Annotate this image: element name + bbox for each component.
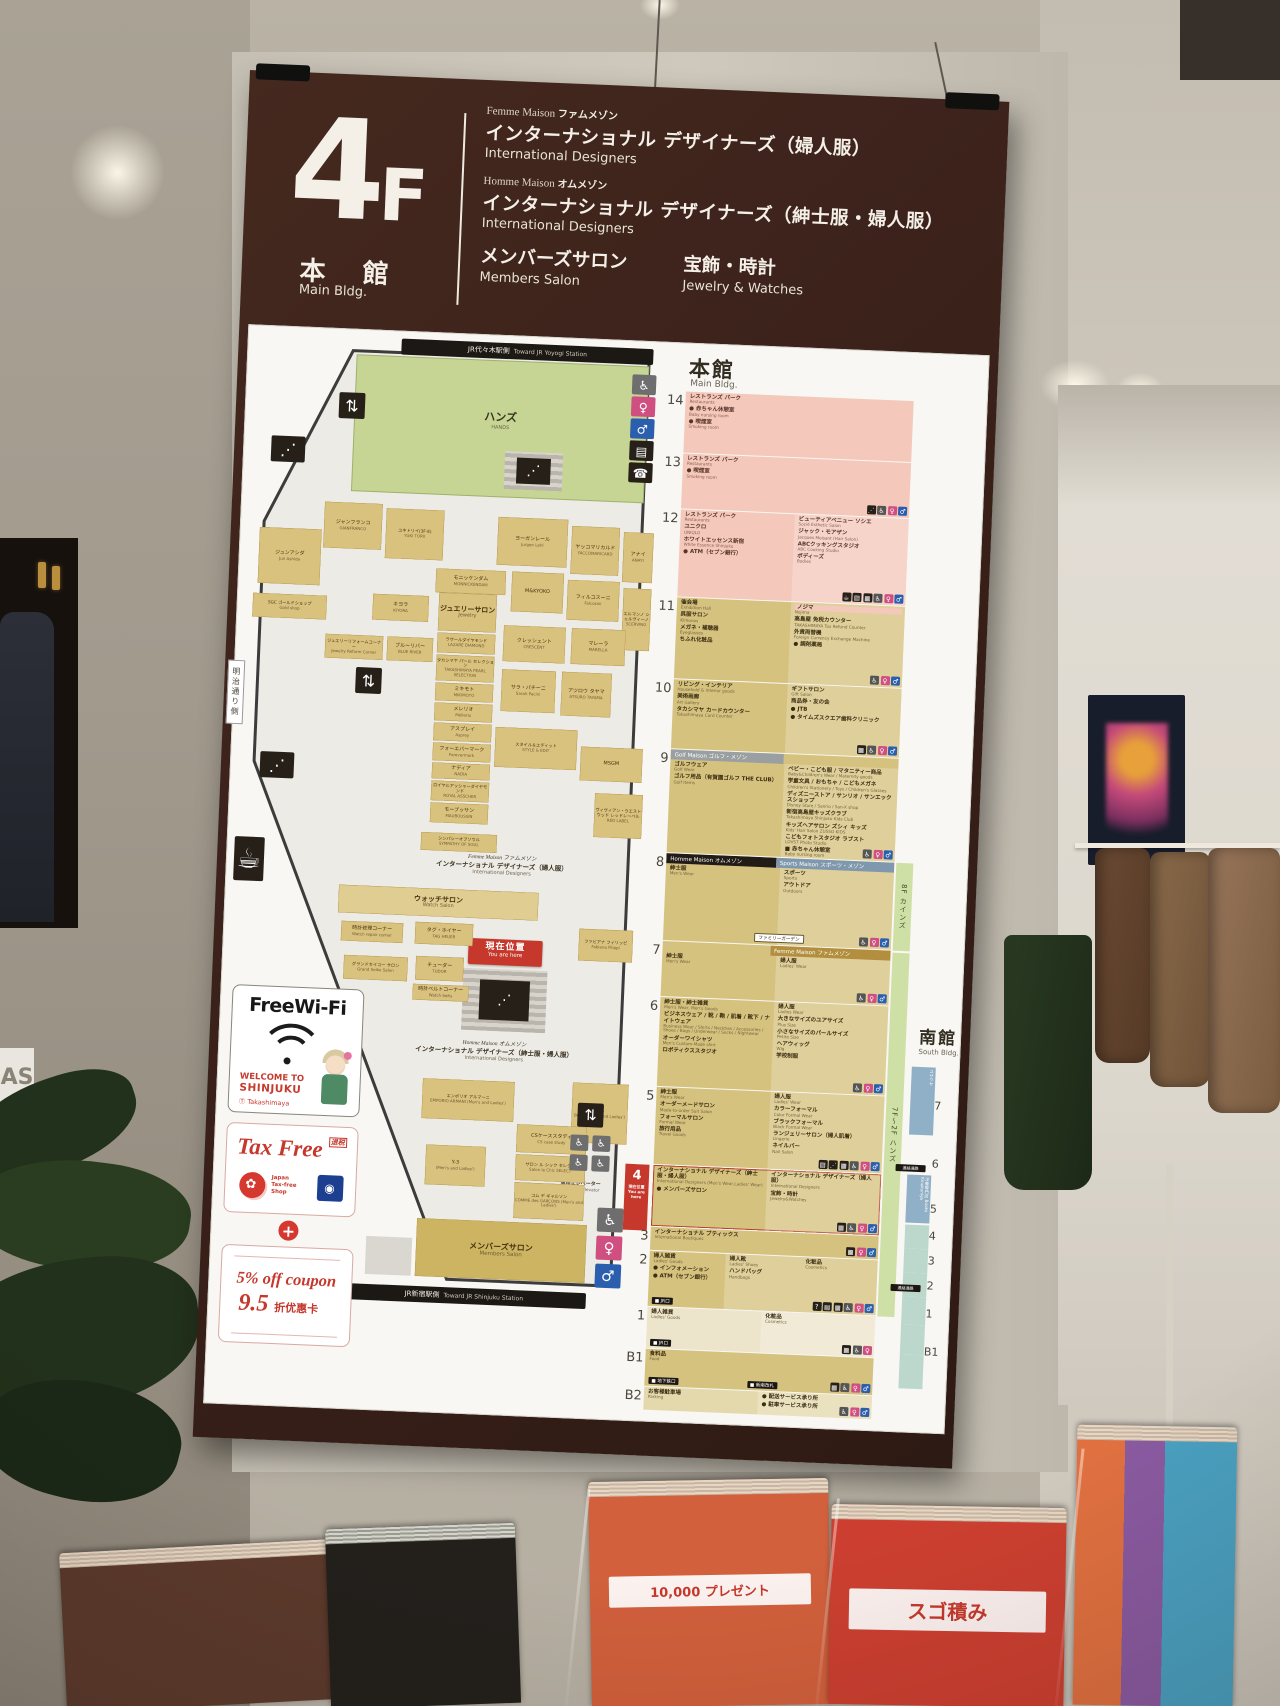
map-shop: Y-3(Men's and Ladies') [424, 1144, 486, 1186]
elevator-icon: ⇅ [577, 1103, 604, 1128]
coupon-text-cn: 折优惠卡 [274, 1299, 319, 1317]
vending-icon: ▤ [629, 440, 654, 461]
map-shop-name-en: STYLE & EDIT [522, 748, 549, 754]
directory-item: 婦人服Ladies' Wear [780, 958, 887, 973]
pair-jp: 宝飾・時計 [683, 250, 805, 281]
coupon-number: 9.5 [238, 1290, 269, 1318]
coat [1208, 848, 1280, 1113]
shop-icon: ▦ [842, 1345, 851, 1354]
map-shop-name-en: MONNICKENDAM [454, 582, 488, 588]
floor-number-3: 3 [622, 1226, 649, 1244]
directory-item: 婦人雑貨Ladies' Goods [651, 1309, 758, 1324]
row-icons: ♿♀♂ [839, 1407, 869, 1417]
brochure-stack [1073, 1425, 1238, 1706]
members-salon-area: メンバーズサロン Members Salon [415, 1218, 587, 1283]
ceiling-recess [1180, 0, 1280, 80]
wheelchair-icon: ♿ [840, 1383, 849, 1392]
women-restroom-icon: ♀ [857, 1223, 866, 1232]
women-restroom-icon: ♀ [595, 1236, 622, 1261]
wheelchair-icon: ♿ [839, 1407, 848, 1416]
wheelchair-icon: ♿ [592, 1135, 611, 1152]
row-icons: ▦♿♀ [842, 1345, 872, 1355]
digital-signage-screen [1088, 695, 1185, 865]
women-restroom-icon: ♀ [851, 1383, 860, 1392]
women-restroom-icon: ♀ [863, 1346, 872, 1355]
directory-item: 化粧品Cosmetics [765, 1314, 872, 1329]
men-restroom-icon: ♂ [864, 1304, 873, 1313]
directory-row-6: 6紳士服・紳士雑貨Men's Wear, Men's Goodsビジネスウェア … [629, 996, 917, 1098]
floor-row-content: 婦人雑貨Ladies' Goods● インフォメーション● ATM（セブン銀行）… [648, 1251, 878, 1315]
geisha-illustration [317, 1047, 353, 1106]
map-shop: シンパシーオブソウルSYMPATHY OF SOUL [420, 832, 497, 853]
row-columns: ゴルフウェアGolf Wearゴルフ用品（有賀園ゴルフ THE CLUB）Gol… [667, 759, 899, 861]
map-shop-name-en: Salon le Chic SELECT [529, 1168, 571, 1174]
row-icons: ▦♿♀♂ [836, 1223, 877, 1234]
women-restroom-icon: ♀ [884, 594, 893, 603]
row-columns: レストランズ パークRestaurants● 赤ちゃん休憩室Baby nursi… [683, 392, 913, 462]
men-restroom-icon: ♂ [891, 676, 900, 685]
map-shop-name-en: Grand Seiko Salon [357, 967, 394, 973]
women-restroom-icon: ♀ [869, 938, 878, 947]
wheelchair-icon: ♿ [849, 1161, 858, 1170]
south-floor-number-2: 2 [926, 1279, 949, 1293]
row-column: レストランズ パークRestaurants● 赤ちゃん休憩室Baby nursi… [683, 392, 913, 462]
row-column: 紳士服Men's WearオーダーメードサロンMade-to-order Sui… [654, 1087, 771, 1169]
connecting-passage-badge: 連絡通路 [890, 1284, 920, 1292]
row-column: リビング・インテリアHousehold & Interior goods美術画廊… [671, 679, 788, 753]
directory-item: 紳士服Men's Wear [670, 865, 777, 880]
map-shop-name-en: EMPORIO ARMANI (Men's and Ladies') [430, 1099, 506, 1107]
row-column: 婦人服Ladies Wear大きなサイズのユアサイズPlus Size小さなサイ… [771, 1002, 889, 1096]
shop-icon: ▦ [856, 745, 865, 754]
map-shop-name-en: MAUBOUSSIN [445, 813, 472, 819]
welcome-text: SHINJUKU [239, 1081, 301, 1096]
row-badge: ■ 新南改札 [747, 1381, 777, 1389]
men-restroom-icon: ♂ [870, 1162, 879, 1171]
wheelchair-icon: ♿ [867, 745, 876, 754]
floor-row-content: レストランズ パークRestaurants● 赤ちゃん休憩室Baby nursi… [683, 392, 913, 462]
map-shop-name-en: Jurgen Lehl [521, 542, 544, 548]
shop-icon: ▦ [839, 1161, 848, 1170]
shopper-silhouette [0, 612, 54, 922]
women-restroom-icon: ♀ [887, 506, 896, 515]
row-columns: 紳士服・紳士雑貨Men's Wear, Men's Goodsビジネスウェア /… [657, 997, 889, 1095]
you-are-here-marker: 現在位置 You are here [468, 938, 543, 967]
row-icons: ▦♿♀♂ [830, 1382, 871, 1393]
vending-icon: ▤ [818, 1160, 827, 1169]
wheelchair-icon: ♿ [870, 676, 879, 685]
floor-number-9: 9 [642, 748, 669, 766]
wheelchair-icon: ♿ [873, 594, 882, 603]
south-building-title: 南館 South Bldg. [918, 1023, 960, 1058]
floor-row-content: レストランズ パークRestaurantsユニクロUNIQLOホワイトエッセンス… [677, 509, 908, 605]
map-shop: メレリオMellerio [434, 702, 493, 722]
rack-divider [565, 1488, 591, 1706]
floor-row-content: リビング・インテリアHousehold & Interior goods美術画廊… [671, 679, 902, 757]
directory-row-11: 11催会場Exhibition Hall呉服サロンKimonosメガネ・補聴器E… [646, 596, 933, 690]
tax-free-title: Tax Free 退税 [226, 1133, 357, 1164]
japan-tax-free-logo [239, 1172, 266, 1199]
map-shop-name-en: GIANFRANCO [339, 526, 366, 532]
elevator-icon: ⇅ [355, 667, 382, 694]
women-restroom-icon: ♀ [854, 1303, 863, 1312]
south-floor-number-1: 1 [925, 1307, 948, 1321]
row-badge: ■ JR口 [650, 1339, 671, 1347]
escalator-icon: ⋰ [461, 968, 548, 1033]
map-shop-name-en: KIYORA [393, 608, 408, 613]
floor-number-1: 1 [619, 1306, 646, 1324]
map-shop: 時計修理コーナーWatch repair corner [341, 921, 404, 944]
map-shop-name-en: Fabiana Filippi [591, 945, 619, 951]
map-shop-name-jp: M&KYOKO [525, 589, 550, 596]
header-divider [456, 113, 466, 305]
row-column: 紳士服Men's Wear [661, 951, 777, 1001]
map-shop-name-en: Forevermark [449, 753, 475, 759]
stairs-icon: ⋰ [271, 435, 306, 462]
map-shop-name-en: SYMPATHY OF SOUL [439, 842, 479, 848]
directory-item: 化粧品Cosmetics [805, 1259, 874, 1273]
wheelchair-icon: ♿ [859, 937, 868, 946]
plus-icon: + [278, 1220, 299, 1241]
map-shop-name-en: Jewelry Reform Corner [331, 648, 376, 654]
map-shop-name-en: ANAYI [632, 558, 644, 563]
coupon-card: 5% off coupon 9.5折优惠卡 [218, 1244, 354, 1347]
shop-icon: ▦ [833, 1303, 842, 1312]
floor-row-content: 紳士服・紳士雑貨Men's Wear, Men's Goodsビジネスウェア /… [657, 997, 889, 1095]
japan-tax-free-text: JapanTax-freeShop [271, 1175, 297, 1197]
floor-number-6: 6 [632, 996, 659, 1014]
map-shop-name-en: COMME des GARÇONS (Men's and Ladies') [514, 1198, 584, 1210]
tax-free-card: Tax Free 退税 JapanTax-freeShop [223, 1122, 359, 1217]
men-restroom-icon: ♂ [894, 594, 903, 603]
women-restroom-icon: ♀ [860, 1162, 869, 1171]
wheelchair-icon: ♿ [632, 374, 657, 395]
map-shop: ジュンアシダJun Ashida [258, 527, 322, 586]
map-shop: 時計ベルトコーナーWatch belts [412, 984, 469, 1002]
women-restroom-icon: ♀ [856, 1247, 865, 1256]
map-shop: フィルコスーニFalcosini [566, 580, 620, 622]
brochure-text: 10,000 プレゼント [609, 1573, 811, 1608]
map-shop-name-jp: MSGM [603, 762, 619, 768]
men-restroom-icon: ♂ [884, 850, 893, 859]
south-floor-number-6: 6 [932, 1158, 955, 1172]
row-column: 催会場Exhibition Hall呉服サロンKimonosメガネ・補聴器Eye… [674, 597, 791, 683]
map-shop-name-en: Jewelry [458, 613, 476, 620]
floor-number-5: 5 [628, 1086, 655, 1104]
map-shop-name-en: TUDOR [432, 969, 447, 974]
south-tenant-box [901, 1296, 926, 1325]
pair-en: Jewelry & Watches [682, 278, 803, 298]
row-column: インターナショナル デザイナーズ（紳士服・婦人服）International D… [651, 1165, 767, 1231]
map-shop-name-en: YUKI TORII [404, 534, 425, 539]
escalator-icon: ⋰ [828, 1160, 837, 1169]
brochure-stack [59, 1539, 342, 1706]
map-shop: アスプレイAsprey [433, 722, 492, 742]
directory-item: 紳士服Men's Wear [666, 953, 773, 968]
row-icons: ▦♀♂ [846, 1247, 876, 1257]
map-shop: ロイヤルアッシャーダイヤモンドROYAL ASSCHER [431, 780, 490, 802]
wheelchair-icon: ♿ [853, 1083, 862, 1092]
women-restroom-icon: ♀ [877, 746, 886, 755]
wheelchair-icon: ♿ [844, 1303, 853, 1312]
floor-number-10: 10 [645, 678, 672, 696]
map-shop-name-en: NADIA [454, 772, 467, 777]
men-restroom-icon: ♂ [860, 1408, 869, 1417]
floor-row-content: Homme Maison オムメゾンSports Maison スポーツ・メゾン… [663, 853, 894, 949]
bottle [52, 566, 60, 590]
women-restroom-icon: ♀ [863, 1084, 872, 1093]
map-shop: ヴィヴィアン・ウエストウッド レッドレーベルRED LABEL [593, 793, 643, 839]
information-icon: ? [812, 1302, 821, 1311]
header-entry-1: Homme Maison オムメゾンインターナショナル デザイナーズ（紳士服・婦… [481, 172, 995, 252]
cafe-icon: ☕ [842, 592, 851, 601]
men-restroom-icon: ♂ [594, 1264, 621, 1289]
floor-number-7: 7 [634, 940, 661, 958]
map-shop: ブルーリバーBLUE RIVER [386, 636, 433, 662]
map-shop-name-en: MARELLA [589, 647, 608, 652]
brochure-text: スゴ積み [848, 1588, 1046, 1632]
map-shop: グランドセイコー サロンGrand Seiko Salon [343, 955, 408, 982]
building-name-en: Main Bldg. [299, 282, 368, 300]
shop-icon: ▦ [836, 1223, 845, 1232]
header-pair: メンバーズサロンMembers Salon宝飾・時計Jewelry & Watc… [479, 242, 992, 306]
header-pair-item-1: 宝飾・時計Jewelry & Watches [682, 250, 804, 298]
row-column: ノジマNojima高島屋 免税カウンターTAKASHIMAYA Tax Refu… [788, 602, 905, 688]
map-shop: チューダーTUDOR [415, 956, 464, 982]
shop-icon: ▦ [863, 593, 872, 602]
row-column: 紳士服・紳士雑貨Men's Wear, Men's Goodsビジネスウェア /… [657, 997, 775, 1091]
floor-number-11: 11 [649, 596, 676, 614]
meiji-street-label: 明治通り側 [226, 660, 246, 725]
corridor-block [365, 1236, 413, 1276]
row-column: ベビー・こども服 / マタニティー商品Baby&Children's Wear … [781, 764, 899, 862]
floor-number-4: 4現在位置You are here [623, 1164, 650, 1231]
map-shop: フォーエバーマークForevermark [432, 742, 491, 762]
map-shop: コム デ ギャルソンCOMME des GARÇONS (Men's and L… [513, 1182, 584, 1221]
map-shop-name-en: (Men's and Ladies') [436, 1165, 475, 1171]
floor-guide-sign: 4F 本 館 Main Bldg. Femme Maison ファムメゾンインタ… [193, 70, 1010, 1469]
men-restroom-icon: ♂ [898, 507, 907, 516]
escalator-icon: ⋰ [504, 451, 564, 491]
floor-row-content: 催会場Exhibition Hall呉服サロンKimonosメガネ・補聴器Eye… [674, 597, 905, 687]
map-panel: JR代々木駅側Toward JR Yoyogi Station ハンズ HAND… [203, 324, 990, 1434]
ceiling-light [70, 125, 165, 220]
cafe-icon: ☕ [233, 836, 265, 881]
men-restroom-icon: ♂ [861, 1384, 870, 1393]
map-shop-name-en: TAG HEUER [432, 934, 455, 940]
row-icons: ♿♀♂ [870, 676, 900, 686]
south-floor-number-3: 3 [927, 1254, 950, 1268]
map-shop: モニッケンダムMONNICKENDAM [435, 568, 506, 595]
south-floor-number-7: 7 [934, 1100, 957, 1114]
directory-row-12: 12レストランズ パークRestaurantsユニクロUNIQLOホワイトエッセ… [649, 508, 936, 608]
bottle [38, 562, 46, 588]
directory-row-10: 10リビング・インテリアHousehold & Interior goods美術… [643, 678, 930, 760]
map-shop-name-en: RED LABEL [607, 818, 629, 824]
map-shop: ナディアNADIA [432, 762, 491, 780]
wheelchair-icon: ♿ [569, 1154, 588, 1171]
map-shop-name-en: LAZARE DIAMOND [448, 643, 485, 649]
map-shop: ユキトリイ(3F-E)YUKI TORII [385, 508, 445, 560]
row-badge: ■ JR口 [652, 1297, 673, 1305]
row-icons: ⋰♿♀♂ [866, 505, 907, 516]
map-shop: アツロウ タヤマATSURO TAYAMA [560, 672, 612, 718]
directory-item: ハンドバッグHandbags [729, 1268, 798, 1282]
row-column: お客様駐車場Parking [643, 1387, 758, 1415]
map-shop: スタイル＆エディットSTYLE & EDIT [494, 727, 578, 770]
header-entries: Femme Maison ファムメゾンインターナショナル デザイナーズ（婦人服）… [479, 102, 998, 306]
coat [1095, 848, 1150, 1063]
row-column: ゴルフウェアGolf Wearゴルフ用品（有賀園ゴルフ THE CLUB）Gol… [667, 759, 785, 857]
escalator-icon: ⋰ [866, 505, 875, 514]
row-icons: ♿♀♂ [853, 1083, 883, 1093]
men-restroom-icon: ♂ [874, 1084, 883, 1093]
map-shop: キヨラKIYORA [372, 594, 429, 622]
south-tenant-box [903, 1248, 928, 1273]
map-shop-name-en: Gold shop [279, 606, 299, 611]
south-tenant-box: ユザワヤ [909, 1067, 936, 1136]
map-shop: ジャンフランコGIANFRANCO [323, 502, 383, 550]
directory-item: お客様駐車場Parking [648, 1389, 755, 1404]
floor-number-B2: B2 [616, 1385, 643, 1403]
row-icons: ♿♀♂ [859, 937, 889, 947]
south-floor-number-5: 5 [930, 1202, 953, 1216]
women-restroom-icon: ♀ [850, 1407, 859, 1416]
item-jp: ● ATM（セブン銀行） [653, 1273, 722, 1282]
row-columns: レストランズ パークRestaurantsユニクロUNIQLOホワイトエッセンス… [677, 509, 908, 605]
men-restroom-icon: ♂ [877, 994, 886, 1003]
wheelchair-icon: ♿ [856, 993, 865, 1002]
store-photo-scene: AS 4F 本 館 Main Bldg. Femme Maison ファムメゾン… [0, 0, 1280, 1706]
map-shop-name-en: Jun Ashida [279, 556, 300, 561]
map-shop: サラ・パチーニSarah Pacini [500, 669, 556, 713]
men-restroom-icon: ♂ [868, 1224, 877, 1233]
row-icons: ♿♀♂ [863, 849, 893, 859]
directory-title-en: Main Bldg. [690, 379, 738, 391]
map-shop: ヤッコマリカルドYACCOMARICARD [570, 526, 620, 576]
vending-icon: ▤ [823, 1302, 832, 1311]
map-shop: タカシマヤ パール セレクションTAKASHIMAYA PEARL SELECT… [436, 654, 495, 682]
wheelchair-icon: ♿ [852, 1345, 861, 1354]
map-shop-name-en: TAKASHIMAYA PEARL SELECTION [436, 668, 494, 680]
map-shop: ジュエリーリフォームコーナーJewelry Reform Corner [324, 634, 383, 660]
women-restroom-icon: ♀ [873, 850, 882, 859]
map-shop: M&KYOKO [511, 571, 565, 613]
row-icons: ♿♀♂ [856, 993, 886, 1003]
map-shop: ラザールダイヤモンドLAZARE DIAMOND [437, 632, 496, 654]
map-shop-name-en: MIKIMOTO [454, 693, 475, 698]
shop-icon: ▦ [830, 1382, 839, 1391]
map-shop: タグ・ホイヤーTAG HEUER [415, 922, 474, 946]
floor-number-12: 12 [652, 508, 679, 526]
free-wifi-card: FreeWi-Fi WELCOME TO SHINJUKU Ⓣ Takashim… [227, 984, 364, 1117]
wheelchair-icon: ♿ [877, 506, 886, 515]
coat [1150, 852, 1210, 1087]
shop-icon: ▦ [846, 1247, 855, 1256]
row-badge: ■ 地下鉄口 [648, 1377, 678, 1385]
green-garment [1004, 935, 1092, 1190]
elevator-icon: ⇅ [339, 392, 366, 419]
connecting-passage-badge: 連絡通路 [895, 1164, 925, 1172]
brochure-stack-10000: 10,000 プレゼント [588, 1478, 832, 1706]
men-restroom-icon: ♂ [630, 418, 655, 439]
map-shop: ヨーガンレールJurgen Lehl [496, 517, 568, 568]
map-shop: クレッシェントCRESCENT [502, 625, 565, 664]
south-tenant-box [900, 1324, 925, 1355]
map-shop-name-en: Watch belts [429, 993, 453, 999]
stairs-icon: ⋰ [259, 751, 294, 778]
tax-free-blue-logo [317, 1175, 344, 1202]
floor-directory: 本館 Main Bldg. 南館 South Bldg. 14レストランズ パー… [615, 345, 990, 1430]
map-shop-name-en: Watch repair corner [352, 932, 392, 938]
floor-row-content: 紳士服Men's WearオーダーメードサロンMade-to-order Sui… [654, 1087, 885, 1173]
directory-item: ● ATM（セブン銀行） [653, 1273, 722, 1282]
wheelchair-icon: ♿ [570, 1134, 589, 1151]
map-shop-name-en: ATSURO TAYAMA [569, 695, 602, 701]
map-shop-name-en: SCERVINO [626, 622, 647, 627]
map-shop: エンポリオ アルマーニEMPORIO ARMANI (Men's and Lad… [421, 1078, 515, 1122]
header-entry-0: Femme Maison ファムメゾンインターナショナル デザイナーズ（婦人服）… [484, 102, 998, 182]
men-restroom-icon: ♂ [867, 1248, 876, 1257]
row-columns: 催会場Exhibition Hall呉服サロンKimonosメガネ・補聴器Eye… [674, 597, 905, 687]
row-column: 婦人靴Ladies' ShoesハンドバッグHandbags [724, 1254, 802, 1312]
floor-number: 4F [287, 100, 432, 244]
wheelchair-icon: ♿ [847, 1223, 856, 1232]
map-shop: ファビアナ フィリッピFabiana Filippi [578, 929, 633, 963]
brochure-stack [325, 1523, 521, 1706]
wheelchair-icon: ♿ [863, 849, 872, 858]
directory-row-5: 5紳士服Men's WearオーダーメードサロンMade-to-order Su… [626, 1086, 913, 1176]
map-shop: モーブッサンMAUBOUSSIN [430, 802, 489, 824]
brochure-stack-sugo: スゴ積み [828, 1504, 1066, 1706]
women-restroom-icon: ♀ [631, 396, 656, 417]
floor-number-13: 13 [655, 452, 682, 470]
south-tenant-box: 洋書専門店 Books Kinokuniya [905, 1174, 931, 1223]
row-icons: ▦♿♀♂ [856, 745, 897, 756]
pair-jp: メンバーズサロン [480, 242, 628, 274]
floor-number-B1: B1 [617, 1348, 644, 1366]
map-shop-name-en: YACCOMARICARD [577, 551, 612, 557]
map-shop-name-en: Sarah Pacini [516, 691, 541, 697]
south-floor-number-4: 4 [928, 1229, 951, 1243]
map-shop-name-en: ROYAL ASSCHER [443, 793, 476, 799]
vending-icon: ▤ [852, 593, 861, 602]
map-shop-name-en: Falcosini [584, 601, 601, 606]
header-pair-item-0: メンバーズサロンMembers Salon [479, 242, 628, 291]
men-restroom-icon: ♂ [880, 938, 889, 947]
floor-row-content: インターナショナル デザイナーズ（紳士服・婦人服）International D… [651, 1165, 881, 1235]
directory-row-9: 9Golf Maison ゴルフ・メゾンゴルフウェアGolf Wearゴルフ用品… [639, 748, 927, 864]
map-shop: マレーラMARELLA [570, 628, 625, 666]
map-shop: SGC ゴールドショップGold shop [252, 593, 327, 620]
sign-header: 4F 本 館 Main Bldg. Femme Maison ファムメゾンインタ… [239, 70, 1009, 354]
women-restroom-icon: ♀ [867, 994, 876, 1003]
floor-number-14: 14 [657, 390, 684, 408]
wheelchair-icon: ♿ [597, 1208, 624, 1233]
map-shop-name-en: CS case study [537, 1140, 565, 1146]
floor-row-content: Golf Maison ゴルフ・メゾンゴルフウェアGolf Wearゴルフ用品（… [667, 749, 899, 861]
floor-number-8: 8 [638, 852, 665, 870]
floor-row-content: レストランズ パークRestaurants● 喫煙室Smoking room⋰♿… [681, 453, 911, 517]
women-restroom-icon: ♀ [880, 676, 889, 685]
wifi-title: FreeWi-Fi [232, 993, 363, 1020]
south-tenant-box [904, 1224, 929, 1249]
directory-item: ビジネスウェア / 靴 / 鞄 / 肌着 / 靴下 / ナイトウェアBusine… [663, 1012, 771, 1038]
directory-row-8: 8Homme Maison オムメゾンSports Maison スポーツ・メゾ… [635, 852, 922, 952]
south-tenant-box [898, 1354, 923, 1389]
promo-cards: FreeWi-Fi WELCOME TO SHINJUKU Ⓣ Takashim… [217, 984, 364, 1357]
takashimaya-brand: Ⓣ Takashimaya [239, 1095, 290, 1107]
